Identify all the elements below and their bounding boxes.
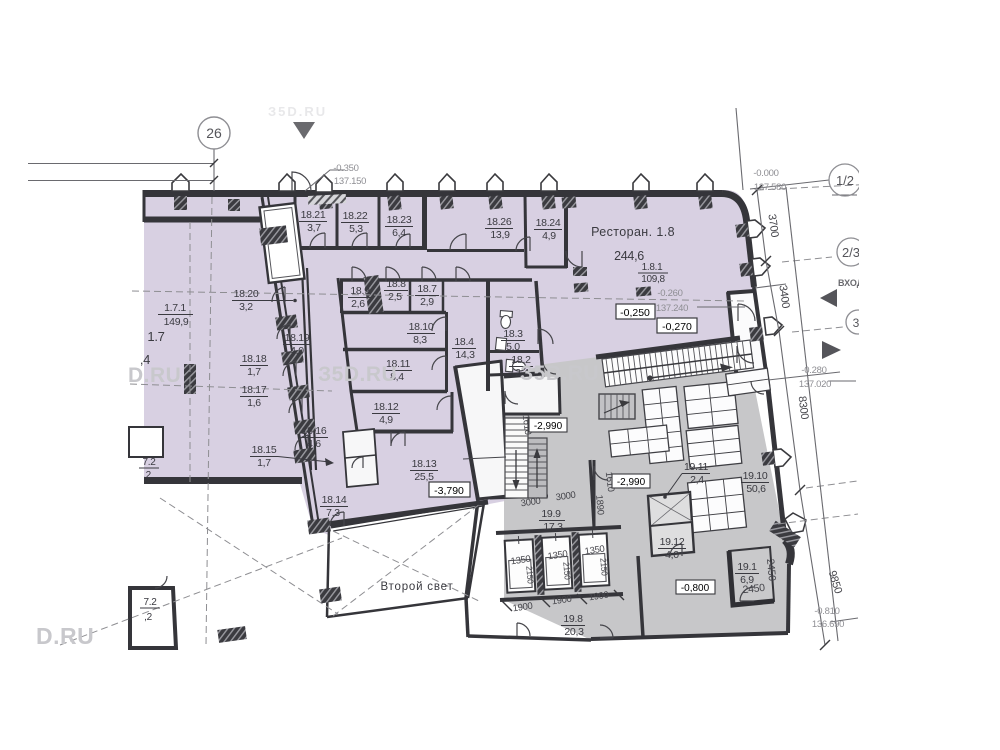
svg-text:19.1: 19.1 xyxy=(737,561,757,573)
svg-text:18.10: 18.10 xyxy=(409,321,434,333)
svg-text:1.7.1: 1.7.1 xyxy=(164,302,186,314)
svg-text:149,9: 149,9 xyxy=(164,316,189,328)
svg-text:20,3: 20,3 xyxy=(564,626,584,638)
svg-text:D.RU: D.RU xyxy=(36,623,94,649)
svg-text:7.2: 7.2 xyxy=(143,597,157,608)
svg-text:19.12: 19.12 xyxy=(660,536,685,548)
svg-text:8,3: 8,3 xyxy=(413,334,427,346)
svg-text:-0.810: -0.810 xyxy=(814,606,839,617)
svg-text:18.22: 18.22 xyxy=(343,210,368,222)
svg-text:18.17: 18.17 xyxy=(242,384,267,396)
svg-text:7.2: 7.2 xyxy=(142,457,156,468)
svg-text:3: 3 xyxy=(853,316,860,330)
svg-text:18.15: 18.15 xyxy=(252,444,277,456)
svg-text:2,9: 2,9 xyxy=(420,296,434,308)
svg-text:Ресторан. 1.8: Ресторан. 1.8 xyxy=(591,225,675,239)
svg-text:1/2: 1/2 xyxy=(836,173,854,188)
svg-text:18.8: 18.8 xyxy=(386,278,406,290)
svg-text:18.19: 18.19 xyxy=(285,332,310,344)
svg-text:5,3: 5,3 xyxy=(349,223,363,235)
svg-text:137.580: 137.580 xyxy=(754,182,786,193)
svg-text:-3,790: -3,790 xyxy=(434,485,464,497)
svg-text:19.9: 19.9 xyxy=(541,508,561,520)
svg-text:З5D.RU: З5D.RU xyxy=(520,362,599,385)
svg-text:18.7: 18.7 xyxy=(417,283,437,295)
svg-text:3,2: 3,2 xyxy=(239,301,253,313)
svg-text:,2: ,2 xyxy=(143,470,151,481)
svg-text:18.3: 18.3 xyxy=(503,328,523,340)
svg-text:18.24: 18.24 xyxy=(536,217,561,229)
svg-text:137.240: 137.240 xyxy=(656,303,688,314)
svg-text:D.RU: D.RU xyxy=(128,364,181,387)
svg-text:136.690: 136.690 xyxy=(812,619,844,630)
svg-text:18.23: 18.23 xyxy=(387,214,412,226)
svg-text:1,6: 1,6 xyxy=(247,397,261,409)
svg-text:1.8.1: 1.8.1 xyxy=(642,262,663,273)
svg-text:-0,270: -0,270 xyxy=(662,321,692,333)
svg-text:17,3: 17,3 xyxy=(543,521,563,533)
svg-text:4,0: 4,0 xyxy=(665,549,679,561)
svg-text:-2,990: -2,990 xyxy=(534,421,563,432)
svg-text:18.9: 18.9 xyxy=(350,285,370,297)
svg-text:18.4: 18.4 xyxy=(454,336,474,348)
svg-text:2150: 2150 xyxy=(524,565,536,584)
svg-text:1890: 1890 xyxy=(593,494,606,515)
svg-text:244,6: 244,6 xyxy=(614,249,644,263)
svg-text:-2,990: -2,990 xyxy=(617,477,646,488)
svg-text:6,9: 6,9 xyxy=(740,574,754,586)
svg-text:2/3: 2/3 xyxy=(842,245,860,260)
svg-text:,2: ,2 xyxy=(144,612,152,623)
svg-text:18.26: 18.26 xyxy=(487,216,512,228)
svg-text:18.12: 18.12 xyxy=(374,401,399,413)
svg-text:2450: 2450 xyxy=(764,558,778,582)
svg-text:18.13: 18.13 xyxy=(412,458,437,470)
svg-text:18.14: 18.14 xyxy=(322,494,347,506)
svg-text:109,8: 109,8 xyxy=(641,274,665,285)
svg-text:З5D.RU: З5D.RU xyxy=(318,363,397,386)
svg-text:Второй свет: Второй свет xyxy=(380,581,453,593)
svg-text:4,9: 4,9 xyxy=(542,230,556,242)
svg-text:137.020: 137.020 xyxy=(799,379,831,390)
svg-text:4,9: 4,9 xyxy=(379,414,393,426)
svg-text:3,7: 3,7 xyxy=(307,222,321,234)
svg-text:6,4: 6,4 xyxy=(392,227,406,239)
svg-text:50,6: 50,6 xyxy=(746,483,766,495)
svg-text:2,5: 2,5 xyxy=(388,291,402,303)
svg-text:18.20: 18.20 xyxy=(234,288,259,300)
svg-text:-0.260: -0.260 xyxy=(657,288,682,299)
svg-text:26: 26 xyxy=(206,125,222,141)
svg-text:1.7: 1.7 xyxy=(147,329,164,344)
svg-text:25,5: 25,5 xyxy=(414,471,434,483)
svg-text:13,9: 13,9 xyxy=(490,229,510,241)
svg-text:-0,250: -0,250 xyxy=(620,307,650,319)
svg-text:4,6: 4,6 xyxy=(307,438,321,450)
svg-text:2,6: 2,6 xyxy=(351,298,365,310)
svg-text:-0.000: -0.000 xyxy=(753,168,778,179)
svg-text:19.8: 19.8 xyxy=(563,613,583,625)
svg-text:2150: 2150 xyxy=(561,561,573,580)
svg-text:18.18: 18.18 xyxy=(242,353,267,365)
svg-text:19.11: 19.11 xyxy=(684,461,708,473)
svg-text:18.16: 18.16 xyxy=(302,425,327,437)
svg-text:18.21: 18.21 xyxy=(301,209,326,221)
svg-text:-0,800: -0,800 xyxy=(681,583,710,594)
svg-text:4,0: 4,0 xyxy=(290,345,304,357)
svg-text:19.10: 19.10 xyxy=(743,470,768,482)
svg-text:137.150: 137.150 xyxy=(334,176,366,187)
svg-text:-0.350: -0.350 xyxy=(333,163,358,174)
svg-text:-0.280: -0.280 xyxy=(801,365,826,376)
svg-text:5,0: 5,0 xyxy=(506,341,520,353)
svg-text:З5D.RU: З5D.RU xyxy=(268,104,327,119)
svg-text:14,3: 14,3 xyxy=(455,349,475,361)
svg-text:2150: 2150 xyxy=(598,557,610,576)
svg-text:2,4: 2,4 xyxy=(690,474,704,486)
svg-text:1,7: 1,7 xyxy=(257,457,271,469)
svg-text:1,7: 1,7 xyxy=(247,366,261,378)
svg-text:7,3: 7,3 xyxy=(326,507,340,519)
